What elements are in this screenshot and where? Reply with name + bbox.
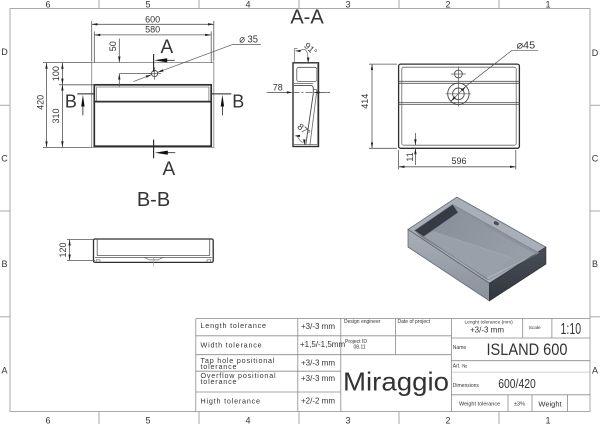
- svg-text:600/420: 600/420: [498, 377, 536, 391]
- svg-text:1:10: 1:10: [561, 321, 582, 338]
- svg-text:5: 5: [145, 416, 150, 424]
- svg-text:⌀ 35: ⌀ 35: [239, 35, 258, 46]
- svg-text:1: 1: [545, 0, 550, 10]
- svg-text:596: 596: [451, 156, 466, 166]
- svg-text:5: 5: [145, 0, 150, 10]
- svg-text:tolerance: tolerance: [201, 362, 238, 371]
- svg-text:420: 420: [36, 95, 46, 110]
- svg-text:B-B: B-B: [137, 189, 170, 211]
- svg-text:Art. №: Art. №: [453, 364, 468, 370]
- svg-text:A: A: [1, 366, 7, 376]
- svg-text:Weight: Weight: [538, 399, 562, 408]
- svg-text:Length tolerance: Length tolerance: [201, 321, 267, 330]
- svg-text:Dimensions: Dimensions: [453, 383, 480, 389]
- svg-text:D: D: [1, 47, 8, 57]
- svg-text:ISLAND 600: ISLAND 600: [487, 341, 568, 359]
- svg-text:A: A: [163, 159, 176, 180]
- svg-text:±3%: ±3%: [514, 402, 525, 408]
- svg-text:A-A: A-A: [290, 7, 324, 29]
- svg-text:11: 11: [405, 152, 415, 161]
- svg-text:B: B: [232, 92, 244, 112]
- svg-text:Higth tolerance: Higth tolerance: [201, 396, 261, 405]
- svg-text:4: 4: [245, 416, 250, 424]
- svg-text:6: 6: [45, 0, 50, 10]
- svg-text:Weight tolerance: Weight tolerance: [459, 402, 500, 408]
- svg-text:78: 78: [273, 83, 283, 93]
- svg-text:Width tolerance: Width tolerance: [201, 341, 263, 350]
- svg-text:08.11: 08.11: [354, 345, 366, 351]
- svg-text:120: 120: [58, 242, 68, 257]
- svg-text:+1,5/-1,5mm: +1,5/-1,5mm: [300, 340, 345, 349]
- svg-text:C: C: [592, 154, 599, 164]
- svg-text:A: A: [592, 366, 598, 376]
- svg-text:91°: 91°: [302, 41, 319, 58]
- svg-text:50: 50: [108, 41, 118, 51]
- svg-text:414: 414: [360, 94, 370, 109]
- svg-text:Name: Name: [453, 345, 467, 351]
- svg-text:Design engineer: Design engineer: [344, 319, 381, 325]
- svg-text:C: C: [1, 154, 8, 164]
- svg-text:A: A: [161, 37, 174, 58]
- svg-text:+3/-3 mm: +3/-3 mm: [301, 359, 335, 368]
- svg-text:Scale: Scale: [529, 325, 541, 331]
- svg-text:600: 600: [145, 15, 160, 25]
- svg-text:Miraggio: Miraggio: [343, 367, 449, 397]
- svg-text:3: 3: [345, 416, 350, 424]
- svg-text:tolerance: tolerance: [201, 377, 238, 386]
- svg-text:2: 2: [445, 0, 450, 10]
- svg-text:D: D: [592, 48, 599, 58]
- svg-text:B: B: [1, 259, 7, 269]
- svg-text:580: 580: [145, 24, 160, 34]
- svg-text:B: B: [65, 92, 77, 112]
- svg-text:⌀45: ⌀45: [517, 40, 536, 51]
- svg-text:1: 1: [545, 416, 550, 424]
- svg-text:+3/-3 mm: +3/-3 mm: [301, 374, 335, 383]
- svg-text:6: 6: [45, 416, 50, 424]
- svg-text:3: 3: [345, 0, 350, 10]
- svg-text:B: B: [592, 259, 598, 269]
- svg-text:2: 2: [445, 416, 450, 424]
- svg-text:+3/-3 mm: +3/-3 mm: [470, 326, 504, 335]
- svg-text:Lenght tolerance (mm): Lenght tolerance (mm): [465, 319, 514, 325]
- svg-text:+2/-2 mm: +2/-2 mm: [301, 397, 335, 406]
- svg-text:4: 4: [245, 0, 250, 10]
- svg-text:+3/-3 mm: +3/-3 mm: [301, 322, 335, 331]
- svg-text:Date of project: Date of project: [398, 319, 431, 325]
- svg-text:100: 100: [51, 66, 61, 81]
- svg-text:310: 310: [51, 108, 61, 123]
